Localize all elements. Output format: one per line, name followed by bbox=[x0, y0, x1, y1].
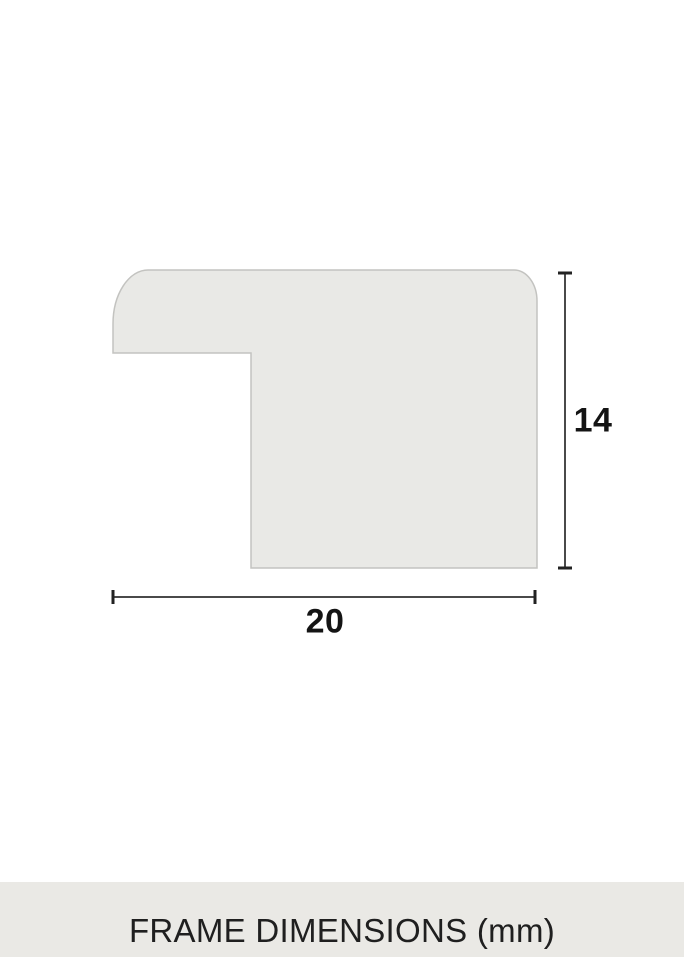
frame-profile-shape bbox=[113, 270, 537, 568]
height-dimension-line bbox=[558, 273, 572, 568]
footer-bar: FRAME DIMENSIONS (mm) bbox=[0, 882, 684, 957]
height-dimension-label: 14 bbox=[574, 402, 613, 441]
width-dimension-label: 20 bbox=[306, 603, 345, 642]
footer-caption: FRAME DIMENSIONS (mm) bbox=[129, 912, 555, 950]
diagram-canvas bbox=[0, 0, 684, 882]
frame-profile-diagram: 14 20 bbox=[0, 0, 684, 882]
